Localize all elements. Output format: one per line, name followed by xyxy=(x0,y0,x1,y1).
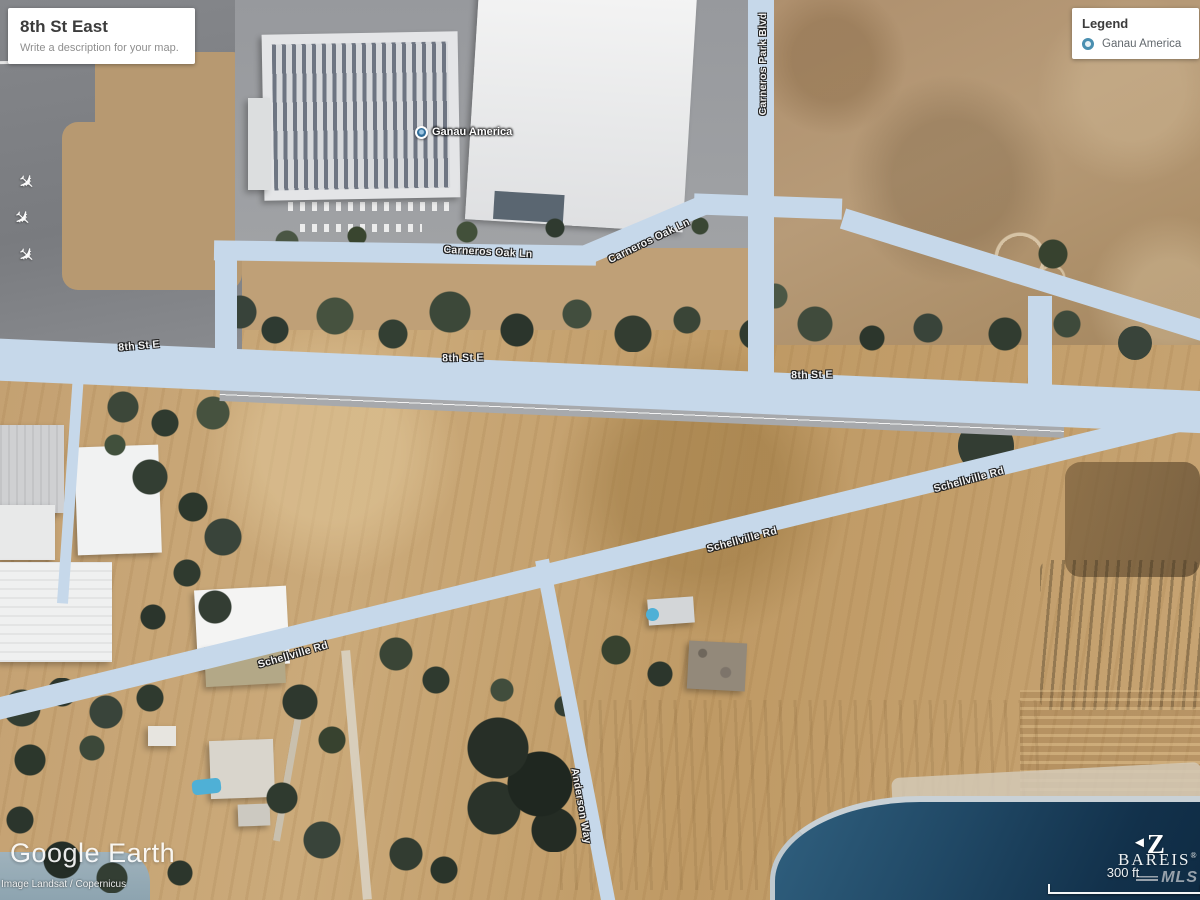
map-canvas[interactable]: ✈ ✈ ✈ xyxy=(0,0,1200,900)
tree-cluster xyxy=(382,828,472,894)
map-title[interactable]: 8th St East xyxy=(20,17,183,37)
legend-item-label: Ganau America xyxy=(1102,38,1181,50)
warehouse-building xyxy=(465,0,697,232)
legend-item-ganau-america[interactable]: Ganau America xyxy=(1082,38,1189,50)
legend-panel: Legend Ganau America xyxy=(1072,8,1199,59)
map-title-card: 8th St East Write a description for your… xyxy=(8,8,195,64)
tree-cluster xyxy=(360,618,700,733)
road-connector xyxy=(215,247,237,357)
registered-mark: ® xyxy=(1190,851,1198,860)
imagery-attribution: Image Landsat / Copernicus xyxy=(1,879,126,890)
building-annex xyxy=(248,98,270,190)
parked-cars-row xyxy=(288,202,456,211)
ganau-america-marker[interactable] xyxy=(415,126,428,139)
solar-roof-building xyxy=(262,31,461,200)
google-earth-watermark: Google Earth xyxy=(10,838,175,869)
compass-arrow-icon: ◄ xyxy=(1132,834,1147,851)
scale-bar xyxy=(1048,884,1200,894)
vineyard-rows xyxy=(1040,560,1200,710)
tree xyxy=(1118,326,1152,360)
road-label-8th-st-e: 8th St E xyxy=(791,369,833,382)
legend-marker-icon xyxy=(1082,38,1094,50)
map-description-placeholder[interactable]: Write a description for your map. xyxy=(20,42,183,54)
road-label-carneros-park-blvd: Carneros Park Blvd xyxy=(757,13,769,116)
legend-title: Legend xyxy=(1082,16,1189,31)
tree-cluster xyxy=(95,385,255,645)
industrial-shed xyxy=(0,425,64,513)
road-label-8th-st-e: 8th St E xyxy=(442,352,484,365)
place-label-ganau-america: Ganau America xyxy=(432,126,512,138)
road-connector xyxy=(1028,296,1052,398)
scale-label: 300 ft xyxy=(1048,865,1198,880)
industrial-shed xyxy=(0,505,55,560)
marker-dot xyxy=(417,128,426,137)
solar-panels xyxy=(272,41,451,190)
